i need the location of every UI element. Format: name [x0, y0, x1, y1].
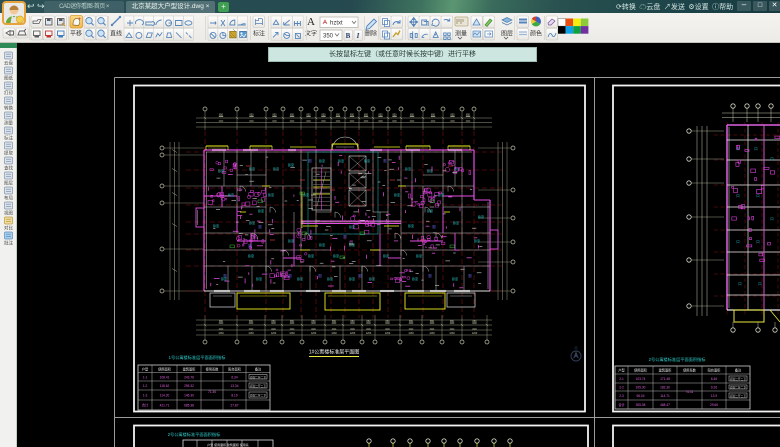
svg-text:2-2: 2-2	[619, 386, 624, 390]
svg-text:卧室: 卧室	[256, 276, 262, 281]
svg-text:1260: 1260	[331, 332, 337, 335]
svg-text:卧室: 卧室	[394, 192, 400, 197]
svg-text:卧室: 卧室	[218, 168, 224, 173]
svg-text:跃层二厅二卫: 跃层二厅二卫	[730, 386, 746, 390]
svg-text:1-3: 1-3	[143, 394, 148, 398]
svg-text:2号公寓楼标准平面面积指标: 2号公寓楼标准平面面积指标	[168, 431, 221, 438]
svg-text:6.46: 6.46	[711, 377, 717, 381]
svg-text:卧室: 卧室	[474, 238, 480, 243]
svg-text:1260: 1260	[289, 332, 295, 335]
svg-text:850: 850	[451, 113, 456, 116]
svg-text:1260: 1260	[472, 332, 478, 335]
svg-text:直线: 直线	[110, 30, 122, 38]
svg-text:使用面积: 使用面积	[634, 368, 648, 373]
svg-text:卧室: 卧室	[297, 276, 303, 281]
svg-text:850: 850	[386, 320, 391, 323]
svg-text:1260: 1260	[429, 332, 435, 335]
svg-text:1260: 1260	[350, 332, 356, 335]
svg-text:视图: 视图	[4, 210, 13, 217]
svg-text:2-1: 2-1	[619, 377, 624, 381]
svg-text:A: A	[307, 16, 315, 28]
svg-text:对比: 对比	[4, 225, 13, 232]
svg-text:850: 850	[466, 113, 471, 116]
svg-text:阳台面积: 阳台面积	[228, 366, 242, 371]
svg-text:提取: 提取	[4, 150, 13, 157]
svg-text:850: 850	[364, 113, 369, 116]
svg-text:图层: 图层	[4, 181, 13, 187]
svg-text:421.71: 421.71	[160, 404, 170, 408]
svg-text:卧室: 卧室	[452, 276, 458, 281]
svg-text:图: 图	[468, 274, 471, 278]
svg-text:使用系数: 使用系数	[206, 366, 220, 371]
svg-text:卧室: 卧室	[364, 158, 370, 163]
svg-text:850: 850	[336, 113, 341, 116]
svg-text:1260: 1260	[248, 332, 254, 335]
svg-text:卧室: 卧室	[213, 223, 219, 228]
svg-text:图层: 图层	[501, 31, 513, 38]
svg-text:卧室: 卧室	[249, 220, 255, 225]
svg-text:850: 850	[290, 113, 295, 116]
svg-text:1260: 1260	[449, 332, 455, 335]
svg-text:6.34: 6.34	[231, 375, 237, 379]
svg-text:口: 口	[738, 282, 741, 286]
svg-text:合计: 合计	[142, 403, 149, 408]
svg-text:850: 850	[450, 320, 455, 323]
svg-text:1260: 1260	[385, 332, 391, 335]
svg-text:口: 口	[736, 147, 739, 151]
svg-text:1260: 1260	[218, 332, 224, 335]
svg-text:71.36: 71.36	[208, 390, 216, 394]
svg-text:114.20: 114.20	[160, 394, 170, 398]
svg-text:卧室: 卧室	[248, 253, 254, 258]
svg-text:850: 850	[473, 320, 478, 323]
svg-text:图: 图	[288, 274, 291, 278]
svg-text:850: 850	[367, 320, 372, 323]
svg-text:卧室: 卧室	[303, 192, 309, 197]
svg-text:850: 850	[272, 320, 277, 323]
svg-text:1#公寓楼标准层平面图: 1#公寓楼标准层平面图	[309, 349, 360, 356]
svg-text:850: 850	[322, 113, 327, 116]
svg-text:850: 850	[250, 113, 255, 116]
svg-text:850: 850	[219, 113, 224, 116]
svg-text:口: 口	[736, 194, 739, 198]
svg-text:卧室: 卧室	[308, 253, 314, 258]
svg-text:295.32: 295.32	[184, 384, 194, 388]
svg-text:跃层二厅二卫: 跃层二厅二卫	[250, 384, 266, 388]
svg-text:转换: 转换	[4, 105, 13, 112]
svg-text:850: 850	[332, 320, 337, 323]
svg-text:云盘: 云盘	[4, 60, 13, 67]
svg-text:卧室: 卧室	[412, 276, 418, 281]
svg-text:1-1: 1-1	[143, 375, 148, 379]
svg-text:卧室: 卧室	[319, 242, 325, 247]
svg-text:146.30: 146.30	[184, 394, 194, 398]
svg-text:图: 图	[358, 274, 361, 278]
svg-text:2-3: 2-3	[619, 394, 624, 398]
svg-text:图: 图	[318, 274, 321, 278]
svg-text:口: 口	[756, 240, 759, 244]
svg-text:850: 850	[249, 320, 254, 323]
svg-text:备注: 备注	[735, 368, 742, 373]
svg-text:布局: 布局	[4, 195, 13, 202]
svg-text:图: 图	[343, 235, 346, 239]
svg-text:查找: 查找	[4, 165, 13, 172]
svg-text:350: 350	[323, 34, 334, 40]
svg-text:卧室: 卧室	[288, 162, 294, 167]
svg-text:卧室: 卧室	[349, 276, 355, 281]
svg-text:卧室: 卧室	[327, 276, 333, 281]
svg-text:13.9: 13.9	[711, 394, 717, 398]
svg-text:9.26: 9.26	[711, 386, 717, 390]
svg-text:850: 850	[379, 113, 384, 116]
svg-text:图: 图	[308, 159, 311, 163]
svg-text:口: 口	[756, 194, 759, 198]
svg-text:1260: 1260	[408, 332, 414, 335]
svg-text:卧室: 卧室	[288, 238, 294, 243]
svg-text:74.31: 74.31	[686, 390, 694, 394]
svg-text:850: 850	[351, 320, 356, 323]
svg-text:建筑面积: 建筑面积	[659, 368, 673, 373]
svg-text:114.71: 114.71	[660, 394, 670, 398]
svg-text:图: 图	[428, 274, 431, 278]
svg-text:卧室: 卧室	[338, 158, 344, 163]
svg-text:1号公寓楼标准层平面面积指标: 1号公寓楼标准层平面面积指标	[169, 354, 226, 361]
svg-text:2号公寓楼标准层平面面积指标: 2号公寓楼标准层平面面积指标	[649, 356, 706, 363]
svg-text:口: 口	[770, 157, 773, 161]
svg-text:850: 850	[350, 113, 355, 116]
svg-text:使用系数: 使用系数	[683, 368, 697, 373]
svg-text:1260: 1260	[311, 332, 317, 335]
svg-text:口: 口	[758, 282, 761, 286]
svg-text:13.34: 13.34	[231, 384, 239, 388]
svg-text:卧室: 卧室	[268, 192, 274, 197]
svg-text:卧室: 卧室	[453, 220, 459, 225]
svg-text:29.66: 29.66	[710, 403, 718, 407]
svg-text:卧室: 卧室	[408, 223, 414, 228]
svg-text:跃层二厅二卫: 跃层二厅二卫	[730, 394, 746, 398]
svg-text:850: 850	[307, 113, 312, 116]
svg-text:103.74: 103.74	[636, 377, 646, 381]
svg-text:850: 850	[430, 320, 435, 323]
svg-text:卧室: 卧室	[416, 253, 422, 258]
svg-text:户型 使用面积 建筑面积 使用系: 户型 使用面积 建筑面积 使用系	[207, 442, 249, 447]
svg-text:跃层二厅二卫: 跃层二厅二卫	[250, 394, 266, 398]
svg-text:北: 北	[574, 345, 578, 350]
svg-text:图: 图	[258, 225, 261, 229]
svg-text:182.30: 182.30	[660, 386, 670, 390]
svg-text:卧室: 卧室	[369, 276, 375, 281]
svg-text:171.48: 171.48	[660, 377, 670, 381]
svg-text:口: 口	[754, 147, 757, 151]
svg-text:阳台面积: 阳台面积	[708, 368, 722, 373]
svg-text:96.04: 96.04	[637, 394, 645, 398]
svg-text:I: I	[356, 32, 360, 40]
svg-text:卧室: 卧室	[258, 208, 264, 213]
svg-text:305.08: 305.08	[636, 403, 646, 407]
svg-text:850: 850	[431, 113, 436, 116]
svg-text:卧室: 卧室	[319, 158, 325, 163]
svg-text:颜色: 颜色	[530, 30, 542, 38]
svg-text:卧室: 卧室	[228, 192, 234, 197]
svg-text:27.87: 27.87	[231, 404, 239, 408]
svg-text:243.76: 243.76	[184, 375, 194, 379]
svg-text:850: 850	[219, 320, 224, 323]
svg-text:8.19: 8.19	[231, 394, 237, 398]
svg-text:删除: 删除	[365, 30, 377, 38]
svg-text:备注: 备注	[255, 366, 262, 371]
svg-text:卧室: 卧室	[249, 166, 255, 171]
svg-text:平移: 平移	[70, 30, 82, 38]
svg-text:1260: 1260	[366, 332, 372, 335]
svg-text:合计: 合计	[618, 402, 625, 407]
svg-text:hztxt: hztxt	[330, 21, 343, 27]
svg-text:图: 图	[248, 244, 251, 248]
svg-text:标注: 标注	[4, 135, 13, 142]
svg-text:850: 850	[410, 113, 415, 116]
svg-text:图: 图	[223, 274, 226, 278]
svg-text:口: 口	[736, 240, 739, 244]
svg-text:850: 850	[393, 113, 398, 116]
svg-text:1260: 1260	[271, 332, 277, 335]
svg-text:测量: 测量	[4, 120, 13, 127]
svg-text:图: 图	[383, 159, 386, 163]
svg-text:户型: 户型	[618, 368, 625, 373]
svg-text:850: 850	[409, 320, 414, 323]
svg-text:卧室: 卧室	[383, 253, 389, 258]
svg-text:118.62: 118.62	[160, 384, 170, 388]
svg-text:卧室: 卧室	[273, 166, 279, 171]
svg-text:图纸: 图纸	[4, 75, 13, 82]
svg-text:标注: 标注	[253, 30, 265, 38]
svg-text:850: 850	[290, 320, 295, 323]
svg-text:685.38: 685.38	[184, 404, 194, 408]
svg-text:口: 口	[770, 217, 773, 221]
svg-text:850: 850	[273, 113, 278, 116]
svg-text:跃层二厅二卫: 跃层二厅二卫	[250, 375, 266, 379]
svg-text:使用面积: 使用面积	[158, 366, 172, 371]
svg-text:建筑面积: 建筑面积	[183, 366, 197, 371]
svg-text:户型: 户型	[142, 366, 149, 371]
svg-text:批注: 批注	[4, 240, 13, 247]
svg-text:卧室: 卧室	[333, 253, 339, 258]
svg-text:测量: 测量	[455, 30, 467, 38]
svg-text:468.47: 468.47	[660, 403, 670, 407]
svg-text:B: B	[346, 32, 351, 40]
svg-text:1-2: 1-2	[143, 384, 148, 388]
svg-text:850: 850	[312, 320, 317, 323]
svg-text:打印: 打印	[4, 90, 13, 97]
svg-text:105.30: 105.30	[636, 386, 646, 390]
svg-text:卧室: 卧室	[478, 214, 484, 219]
svg-text:图: 图	[432, 225, 435, 229]
svg-text:108.41: 108.41	[160, 375, 170, 379]
svg-text:卧室: 卧室	[405, 166, 411, 171]
svg-text:跃层二厅二卫: 跃层二厅二卫	[730, 377, 746, 381]
